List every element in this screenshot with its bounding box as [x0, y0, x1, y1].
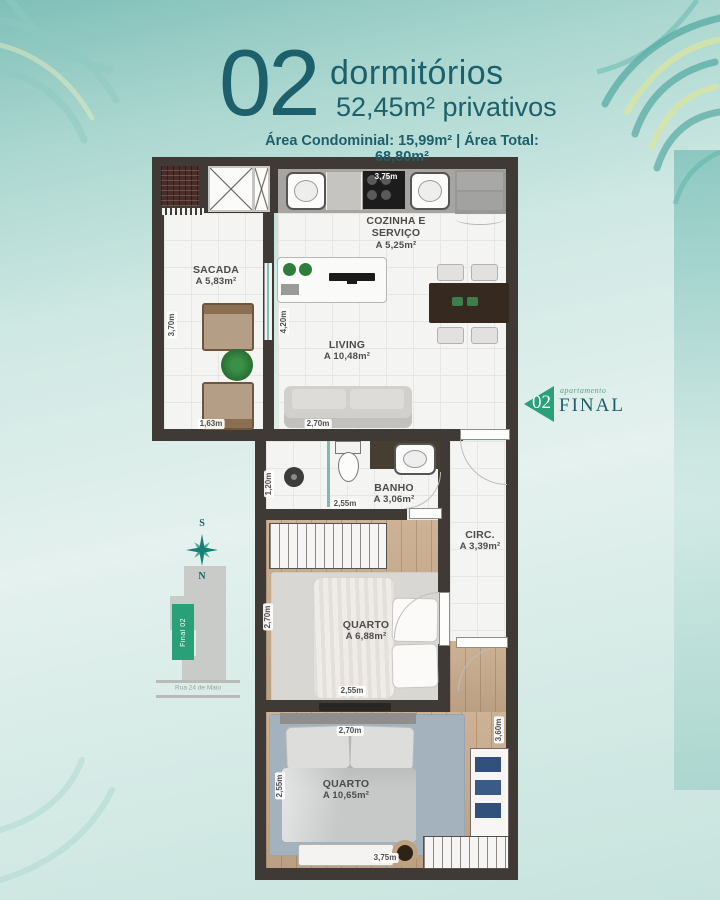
headboard: [280, 713, 416, 724]
street-name: Rua 24 de Maio: [175, 685, 221, 692]
dimension-label: 3,75m: [372, 853, 399, 863]
cabinet-door-swing: [455, 212, 505, 225]
room-area: A 5,25m²: [350, 240, 442, 251]
private-area-subtitle: 52,45m² privativos: [336, 92, 557, 123]
wall: [255, 429, 463, 441]
room-label-sacada: SACADA A 5,83m²: [193, 264, 239, 288]
final-unit-badge: 02 apartamento FINAL: [520, 384, 612, 426]
badge-number: 02: [532, 392, 551, 414]
dimension-label: 4,20m: [279, 309, 289, 336]
ac-condenser: [161, 166, 199, 206]
dining-chair: [471, 327, 498, 344]
room-area: A 5,83m²: [193, 277, 239, 288]
dimension-label: 2,55m: [339, 686, 366, 696]
street-line: [156, 680, 240, 683]
floorplan-page: 02 dormitórios 52,45m² privativos Área C…: [0, 0, 720, 900]
room-name: QUARTO: [343, 619, 390, 631]
laundry-tank: [410, 172, 450, 210]
room-label-quarto2: QUARTO A 10,65m²: [323, 778, 370, 802]
room-area: A 3,06m²: [374, 495, 415, 506]
refrigerator: [455, 170, 506, 214]
badge-small-label: apartamento: [560, 386, 606, 395]
dining-chair: [437, 327, 464, 344]
balcony-chair: [202, 303, 254, 351]
room-name: SACADA: [193, 264, 239, 276]
duct-shaft-narrow: [253, 166, 270, 212]
dimension-label: 2,55m: [332, 499, 359, 509]
dining-table: [429, 283, 509, 323]
tv-stand: [347, 281, 357, 284]
tv: [329, 273, 375, 281]
shower-glass: [327, 441, 330, 507]
unit-count: 02: [219, 38, 318, 127]
duct-shaft: [208, 166, 254, 212]
dimension-label: 1,20m: [264, 471, 274, 498]
street-line: [156, 695, 240, 698]
keyplan-highlighted-unit: Final 02: [172, 604, 194, 660]
room-label-circ: CIRC. A 3,39m²: [460, 529, 501, 553]
dimension-label: 3,70m: [167, 312, 177, 339]
banho-door: [409, 508, 442, 519]
room-label-living: LIVING A 10,48m²: [324, 339, 370, 363]
pillow: [391, 643, 438, 688]
quarto2-door: [456, 637, 508, 648]
room-area: A 10,65m²: [323, 791, 370, 802]
area-summary: Área Condominial: 15,99m² | Área Total: …: [250, 133, 554, 165]
dimension-label: 2,70m: [263, 604, 273, 631]
room-area: A 10,48m²: [324, 352, 370, 363]
compass-star-icon: [185, 533, 219, 567]
wall: [255, 868, 518, 880]
wall: [263, 340, 274, 429]
dimension-label: 2,70m: [305, 419, 332, 429]
wall-tv: [319, 703, 391, 711]
badge-big-label: FINAL: [559, 395, 625, 417]
compass-south-label: S: [199, 518, 205, 529]
wardrobe: [423, 836, 509, 869]
room-name: BANHO: [374, 482, 415, 494]
media-device: [281, 284, 299, 295]
quarto1-door: [439, 592, 450, 646]
room-label-quarto1: QUARTO A 6,88m²: [343, 619, 390, 643]
room-label-cozinha: COZINHA E SERVIÇO A 5,25m²: [350, 215, 442, 251]
dimension-label: 2,55m: [275, 773, 285, 800]
kitchen-sink: [286, 172, 326, 210]
palm-leaf-decoration-right-edge: [674, 150, 720, 790]
sofa: [284, 386, 412, 428]
entry-door: [460, 429, 510, 440]
shelf-unit: [470, 748, 509, 842]
compass-north-label: N: [198, 571, 205, 582]
dimension-label: 2,70m: [337, 726, 364, 736]
room-area: A 6,88m²: [343, 632, 390, 643]
potted-plant: [221, 349, 253, 381]
shower-head: [284, 467, 304, 487]
room-name: COZINHA E SERVIÇO: [350, 215, 442, 240]
sliding-glass-door: [263, 263, 274, 340]
wall: [255, 509, 407, 520]
dishwasher: [326, 172, 362, 210]
room-area: A 3,39m²: [460, 542, 501, 553]
palm-leaf-decoration-bottom-left: [0, 650, 170, 900]
dining-chair: [471, 264, 498, 281]
dimension-label: 1,63m: [198, 419, 225, 429]
plant-pot: [283, 263, 296, 276]
room-name: LIVING: [324, 339, 370, 351]
wall: [263, 213, 274, 263]
bathroom-sink: [394, 443, 436, 475]
dining-chair: [437, 264, 464, 281]
wardrobe: [269, 523, 387, 569]
compass-rose: S N: [180, 518, 224, 582]
keyplan-block: [196, 628, 226, 658]
wall: [438, 644, 450, 712]
dimension-label: 3,60m: [494, 717, 504, 744]
keyplan-unit-label: Final 02: [180, 618, 187, 647]
room-name: CIRC.: [460, 529, 501, 541]
dimension-label: 3,75m: [373, 172, 400, 182]
plant-pot: [299, 263, 312, 276]
room-label-banho: BANHO A 3,06m²: [374, 482, 415, 506]
palm-leaf-decoration-top-right: [485, 0, 720, 250]
room-name: QUARTO: [323, 778, 370, 790]
louver-grill: [160, 208, 204, 215]
page-title: dormitórios: [330, 54, 504, 93]
